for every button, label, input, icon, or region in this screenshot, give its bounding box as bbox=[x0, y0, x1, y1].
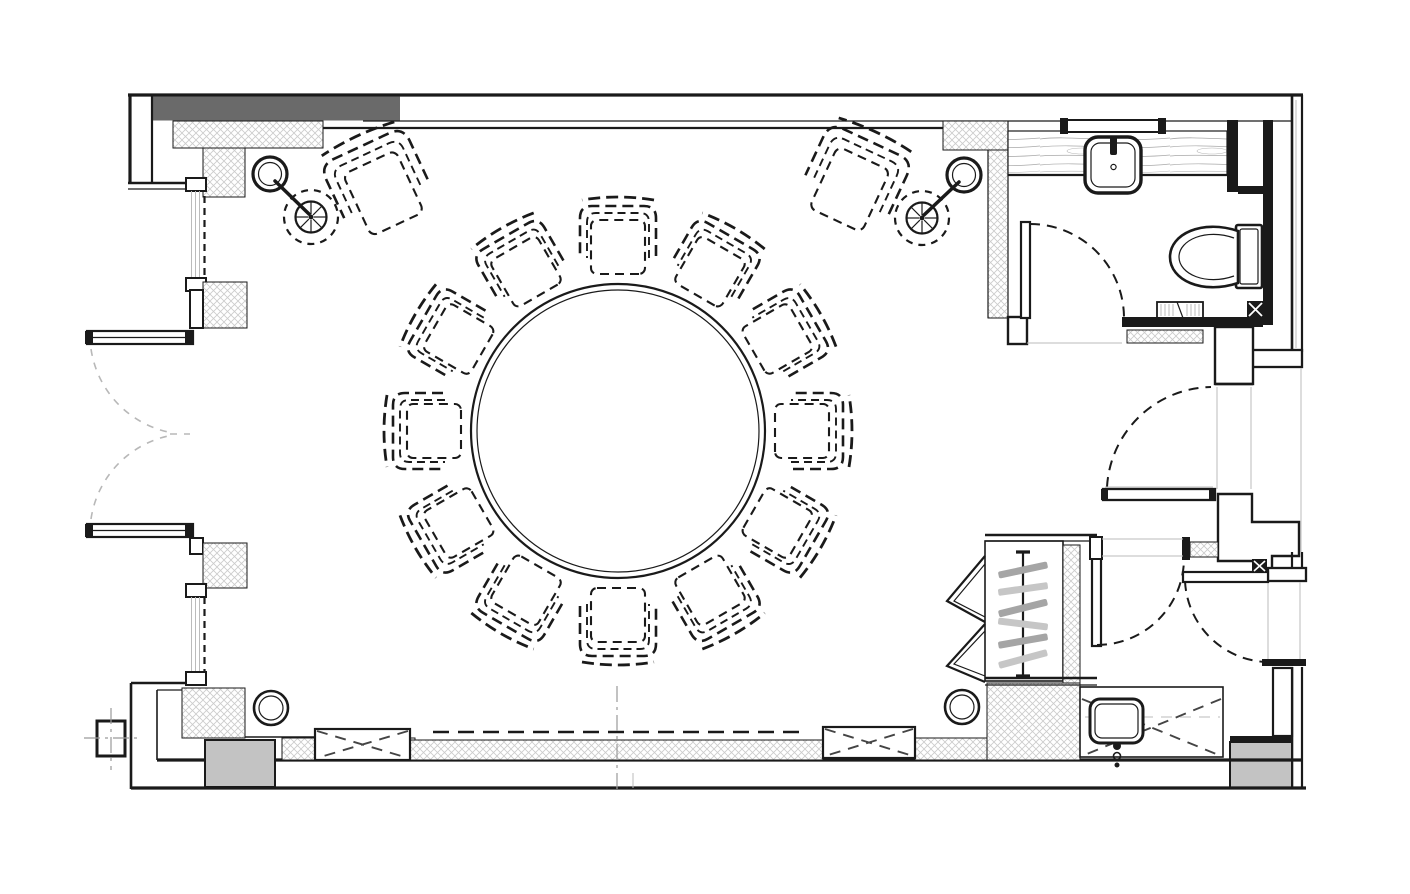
closet-wall-hatch bbox=[1063, 545, 1080, 683]
wall-niche-left bbox=[315, 729, 410, 760]
right-wall-jog bbox=[1248, 350, 1302, 367]
door-swing-arc bbox=[91, 436, 168, 519]
conference-chair bbox=[775, 393, 852, 469]
round-side-table bbox=[895, 191, 949, 245]
corridor-door-upper bbox=[1101, 387, 1216, 500]
ceiling-light bbox=[945, 690, 979, 724]
lounge-sets bbox=[253, 113, 981, 245]
floor-plan-canvas bbox=[0, 0, 1410, 894]
column-hatch-2 bbox=[203, 543, 247, 588]
lounge-chair bbox=[794, 113, 918, 240]
kitchenette bbox=[1080, 687, 1223, 768]
door-hardware-icon bbox=[1252, 559, 1267, 573]
wall-niche-right bbox=[823, 727, 915, 758]
left-wall bbox=[84, 178, 247, 770]
floor-lamp bbox=[253, 157, 287, 191]
door-swing-arc bbox=[1185, 581, 1266, 662]
wall-hatch-bottom-left bbox=[182, 688, 245, 738]
round-side-table bbox=[284, 190, 338, 244]
column-hatch-1 bbox=[203, 282, 247, 328]
bathroom-door bbox=[1021, 222, 1124, 343]
vessel-sink-icon bbox=[1085, 136, 1141, 193]
wall-hatch-bottom-right-corner bbox=[987, 683, 1080, 760]
double-door-left bbox=[85, 331, 193, 537]
conference-chairs bbox=[384, 197, 852, 665]
window-lower-left bbox=[186, 584, 206, 685]
corridor-door-lower-right bbox=[1183, 559, 1268, 662]
door-swing-arc bbox=[91, 349, 168, 432]
vestibule-wall bbox=[1182, 494, 1306, 581]
corridor-door-lower-left bbox=[1092, 556, 1184, 646]
top-wall-filled-band bbox=[152, 97, 400, 121]
conference-chair bbox=[384, 393, 461, 469]
toilet-icon bbox=[1170, 225, 1262, 288]
lounge-chair bbox=[315, 117, 439, 244]
conference-area bbox=[384, 197, 852, 665]
bathroom bbox=[943, 118, 1273, 344]
shaft-block-bottom-right bbox=[1230, 742, 1292, 788]
conference-chair bbox=[580, 197, 656, 274]
mirror bbox=[1060, 118, 1166, 134]
corridor-right bbox=[1092, 327, 1306, 662]
bathroom-partition-hatch bbox=[943, 121, 1008, 150]
conference-chair bbox=[580, 588, 656, 665]
door-swing-arc bbox=[1030, 224, 1124, 318]
bifold-door-icon bbox=[947, 556, 985, 682]
closet bbox=[947, 535, 1183, 685]
ceiling-light bbox=[254, 691, 288, 725]
round-conference-table bbox=[471, 284, 765, 578]
exterior-walls bbox=[128, 95, 1306, 789]
floor-lamp bbox=[947, 158, 981, 192]
floor-drain-icon bbox=[1247, 301, 1264, 318]
door-swing-arc bbox=[1107, 387, 1211, 487]
shaft-block-bottom-left bbox=[205, 740, 275, 787]
bottom-wall bbox=[245, 683, 1080, 792]
wall-grille bbox=[1157, 302, 1203, 318]
floor-plan-drawing bbox=[0, 0, 1410, 894]
door-swing-arc bbox=[1097, 559, 1184, 645]
